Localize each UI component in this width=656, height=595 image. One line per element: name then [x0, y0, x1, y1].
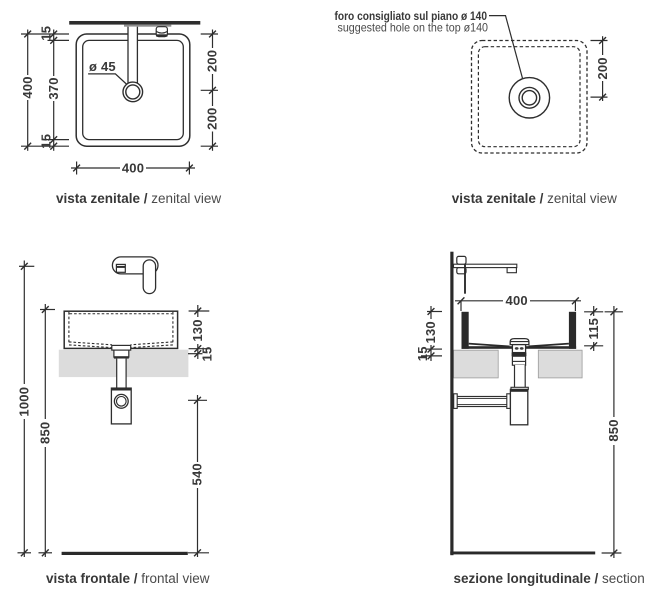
svg-text:vista frontale / frontal view: vista frontale / frontal view: [46, 571, 210, 586]
svg-text:400: 400: [20, 76, 35, 98]
svg-text:540: 540: [190, 463, 205, 485]
svg-text:850: 850: [38, 422, 53, 444]
svg-text:370: 370: [46, 77, 61, 99]
svg-text:suggested hole on the top ø140: suggested hole on the top ø140: [338, 21, 489, 35]
svg-text:130: 130: [190, 319, 205, 341]
svg-text:130: 130: [423, 321, 438, 343]
svg-text:15: 15: [39, 26, 54, 41]
svg-text:200: 200: [595, 57, 610, 79]
svg-text:200: 200: [205, 50, 220, 72]
svg-text:115: 115: [586, 318, 601, 340]
svg-text:ø 45: ø 45: [89, 59, 116, 74]
svg-text:200: 200: [205, 108, 220, 130]
svg-text:15: 15: [39, 134, 54, 149]
svg-text:vista zenitale / zenital view: vista zenitale / zenital view: [452, 191, 617, 206]
svg-text:400: 400: [506, 293, 528, 308]
svg-text:1000: 1000: [17, 387, 32, 417]
svg-text:850: 850: [606, 419, 621, 441]
svg-text:400: 400: [122, 160, 144, 175]
svg-text:15: 15: [415, 346, 430, 361]
svg-text:vista zenitale / zenital view: vista zenitale / zenital view: [56, 191, 221, 206]
svg-text:15: 15: [200, 347, 215, 362]
svg-text:sezione longitudinale / sectio: sezione longitudinale / section: [454, 571, 645, 586]
